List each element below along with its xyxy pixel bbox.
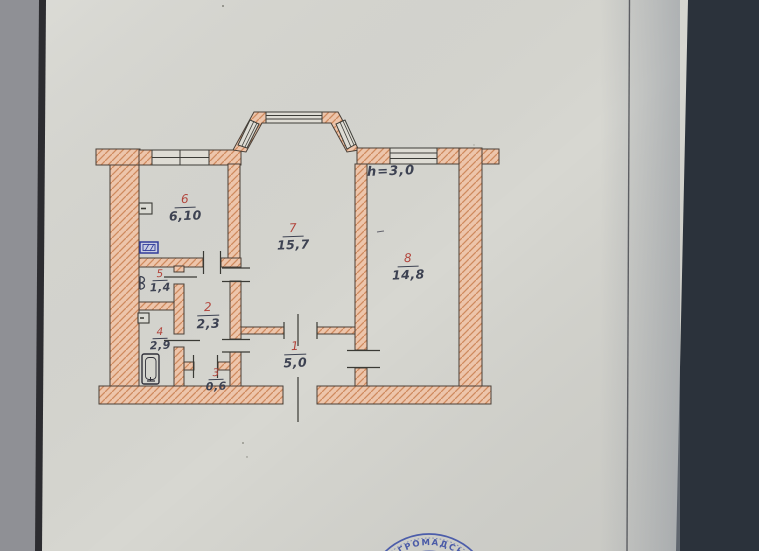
room-4-number: 4 (152, 327, 167, 340)
wall-top-a2 (208, 150, 241, 165)
room-4-label: 4 2,9 (149, 322, 171, 352)
wall-top-right-stub (482, 149, 499, 164)
wall-6-7 (228, 164, 240, 259)
wall-2-7 (230, 281, 241, 339)
room-1-area: 5,0 (283, 354, 307, 369)
room-3-number: 3 (208, 368, 223, 381)
room-8-area: 14,8 (392, 266, 425, 281)
room-8-number: 8 (397, 252, 419, 267)
room-3-label: 3 0,6 (205, 363, 227, 393)
wall-7-1a (241, 327, 284, 334)
room-5-label: 5 1,4 (149, 264, 171, 294)
room-7-label: 7 15,7 (276, 218, 310, 251)
wall-7-1b (317, 327, 355, 334)
wall-5-2a (174, 266, 184, 272)
room-2-area: 2,3 (196, 315, 220, 330)
room-8-label: 8 14,8 (391, 248, 425, 281)
paper-edge-shadow (600, 0, 680, 551)
room-1-label: 1 5,0 (283, 337, 308, 370)
room-2-label: 2 2,3 (196, 298, 221, 331)
wall-top-b1 (357, 148, 391, 164)
scanned-floorplan-page: КА ГРОМАДСЬКА 1 5,0 2 2,3 3 0,6 4 2,9 5 … (0, 0, 759, 551)
room-6-label: 6 6,10 (168, 189, 202, 222)
ceiling-height-note: h=3,0 (367, 163, 416, 180)
window-room8 (390, 148, 437, 164)
window-bay-top (266, 112, 322, 123)
wall-5-4 (139, 302, 174, 310)
window-room6 (152, 150, 209, 165)
wall-top-a1 (139, 150, 153, 165)
wall-6-2 (221, 258, 241, 267)
floorplan-drawing: КА ГРОМАДСЬКА (0, 0, 759, 551)
room-1-number: 1 (284, 340, 306, 355)
desk-left-strip (0, 0, 40, 551)
wall-top-b2 (436, 148, 460, 164)
room-5-number: 5 (152, 269, 167, 282)
ventilation-shaft-icon (140, 242, 158, 253)
wall-7-8 (355, 164, 367, 350)
room-7-area: 15,7 (277, 236, 310, 251)
wall-top-left-stub (96, 149, 140, 165)
room-5-area: 1,4 (150, 281, 171, 294)
room-2-number: 2 (197, 301, 219, 316)
room-3-area: 0,6 (206, 380, 227, 393)
room-4-area: 2,9 (150, 339, 171, 352)
room-6-number: 6 (174, 193, 196, 208)
wall-5-2b (174, 284, 184, 334)
wall-outer-left (110, 165, 139, 386)
washbasin-icon (138, 313, 149, 323)
wall-outer-right (459, 148, 482, 404)
wall-4-3 (174, 347, 184, 386)
room-7-number: 7 (282, 222, 304, 237)
wall-bottom-left (99, 386, 283, 404)
room-6-area: 6,10 (169, 207, 202, 222)
wall-1-8 (355, 368, 367, 386)
wall-2-3a (184, 362, 194, 370)
wall-3-1 (230, 352, 241, 386)
wall-bottom-right (317, 386, 491, 404)
wall-cabinet-icon (139, 203, 152, 214)
